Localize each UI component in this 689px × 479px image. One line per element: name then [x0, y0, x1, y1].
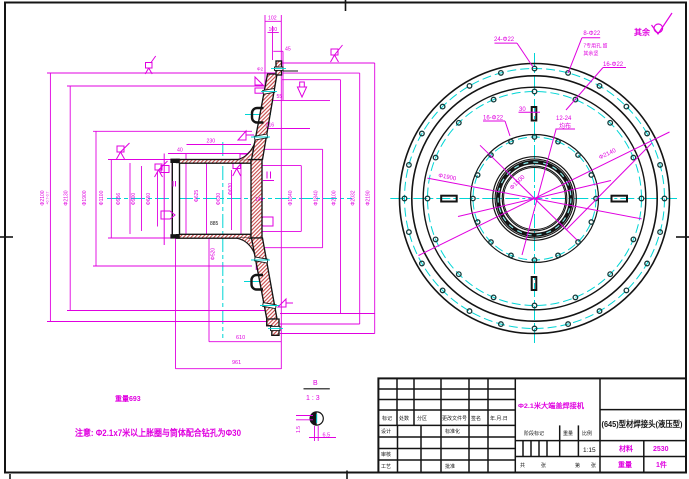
svg-text:40: 40 — [177, 148, 183, 154]
svg-text:Φ2032: Φ2032 — [351, 190, 357, 205]
svg-text:Φ630: Φ630 — [216, 193, 222, 206]
svg-text:24-Φ22: 24-Φ22 — [494, 37, 515, 43]
svg-text:2530: 2530 — [653, 446, 669, 453]
svg-text:标记: 标记 — [382, 415, 392, 422]
svg-text:阶段标记: 阶段标记 — [524, 430, 544, 437]
svg-text:8-Φ22: 8-Φ22 — [583, 31, 600, 37]
svg-text:第: 第 — [575, 462, 580, 469]
svg-text:30: 30 — [519, 107, 526, 113]
svg-text:6.5: 6.5 — [323, 433, 331, 439]
svg-text:Φ1640: Φ1640 — [288, 190, 294, 205]
svg-text:Φ956: Φ956 — [116, 193, 122, 206]
svg-text:16-Φ22: 16-Φ22 — [483, 116, 504, 122]
svg-text:张: 张 — [591, 462, 596, 469]
svg-text:重量: 重量 — [563, 430, 573, 437]
svg-text:1件: 1件 — [656, 460, 667, 469]
svg-text:102: 102 — [268, 16, 277, 22]
svg-text:140: 140 — [255, 197, 264, 203]
svg-text:1.5: 1.5 — [296, 426, 302, 433]
svg-text:张: 张 — [541, 462, 546, 469]
svg-text:共: 共 — [520, 462, 525, 469]
svg-text:注意: Φ2.1x7米以上胀圈与筒体配合钻孔为Φ30: 注意: Φ2.1x7米以上胀圈与筒体配合钻孔为Φ30 — [75, 427, 241, 438]
svg-text:1:15: 1:15 — [583, 447, 596, 454]
svg-text:55: 55 — [277, 94, 283, 100]
svg-text:其余坚: 其余坚 — [583, 50, 598, 57]
svg-text:B: B — [313, 380, 318, 387]
svg-text:Φ1900: Φ1900 — [82, 190, 88, 205]
svg-text:16-Φ22: 16-Φ22 — [603, 62, 624, 68]
svg-text:签名: 签名 — [471, 415, 481, 422]
svg-text:处数: 处数 — [399, 415, 409, 422]
svg-text:批准: 批准 — [445, 463, 455, 470]
svg-text:7专用孔.留: 7专用孔.留 — [583, 43, 607, 50]
svg-text:更改文件号: 更改文件号 — [442, 415, 467, 422]
svg-text:Φ900: Φ900 — [131, 193, 137, 206]
svg-text:材料: 材料 — [618, 444, 633, 453]
svg-text:Φ2.1米大端盖焊接机: Φ2.1米大端盖焊接机 — [518, 401, 584, 410]
svg-text:审核: 审核 — [381, 451, 391, 458]
svg-text:均布: 均布 — [559, 122, 571, 130]
svg-text:Φ660: Φ660 — [146, 193, 152, 206]
svg-text:+0.7-0.7: +0.7-0.7 — [46, 191, 50, 204]
svg-text:45: 45 — [285, 47, 291, 53]
svg-text:其余: 其余 — [634, 27, 651, 37]
svg-text:工艺: 工艺 — [381, 464, 391, 470]
svg-text:比例: 比例 — [582, 430, 592, 437]
svg-text:Φ2130: Φ2130 — [64, 190, 70, 205]
svg-text:Φ630: Φ630 — [228, 183, 234, 196]
svg-text:100: 100 — [269, 27, 278, 33]
svg-text:216: 216 — [266, 123, 275, 129]
svg-text:(645)型材焊接头(液压型): (645)型材焊接头(液压型) — [602, 419, 683, 429]
svg-text:年.月.日: 年.月.日 — [490, 415, 508, 422]
svg-text:Φ2190: Φ2190 — [366, 190, 372, 205]
svg-text:Φ2100: Φ2100 — [332, 190, 338, 205]
svg-text:Φ1840: Φ1840 — [314, 190, 320, 205]
svg-text:Φ520: Φ520 — [211, 248, 217, 261]
svg-text:230: 230 — [207, 139, 216, 145]
svg-text:Φ2: Φ2 — [257, 67, 264, 72]
svg-text:961: 961 — [232, 360, 241, 366]
svg-text:Φ1100: Φ1100 — [99, 190, 105, 205]
svg-text:610: 610 — [236, 335, 245, 341]
svg-text:885: 885 — [210, 221, 219, 227]
svg-text:1 : 3: 1 : 3 — [306, 395, 320, 402]
svg-text:分区: 分区 — [417, 415, 427, 422]
svg-text:设计: 设计 — [381, 428, 391, 435]
svg-text:重量693: 重量693 — [115, 394, 141, 403]
svg-text:12-24: 12-24 — [556, 116, 572, 122]
svg-text:Φ625: Φ625 — [194, 190, 200, 203]
svg-text:重量: 重量 — [618, 460, 632, 469]
svg-text:标准化: 标准化 — [445, 428, 460, 435]
